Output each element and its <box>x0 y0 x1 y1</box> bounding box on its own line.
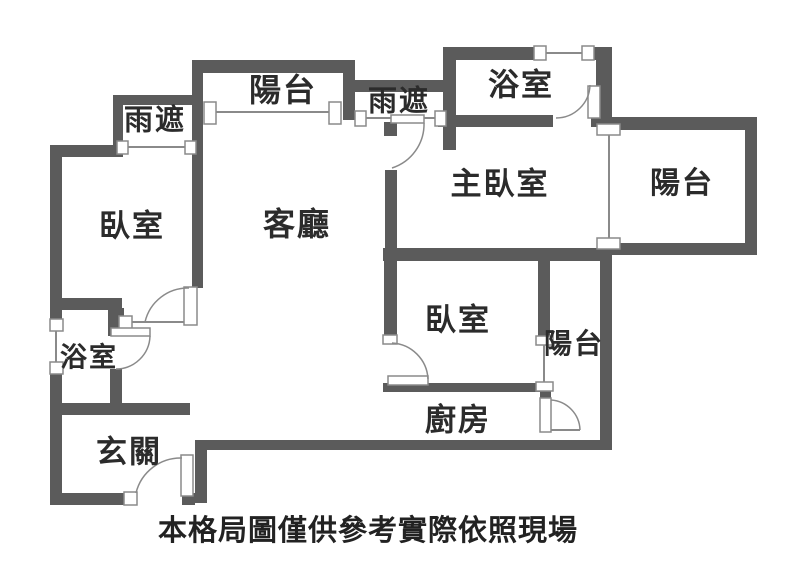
room-label-balcony-top: 陽台 <box>249 74 317 106</box>
wall-bottom-long <box>195 440 611 450</box>
window-jamb <box>329 102 341 124</box>
door-jamb <box>124 492 137 505</box>
wall-bedroom-balcony-divider <box>538 253 550 338</box>
room-label-entry: 玄關 <box>96 437 162 468</box>
window-jamb <box>534 46 546 60</box>
wall-entry-bottom <box>50 493 135 505</box>
door-arc-bath-left <box>116 336 150 369</box>
room-label-canopy-mid: 雨遮 <box>368 88 430 117</box>
wall-living-master-divider <box>385 170 397 250</box>
window-jamb <box>536 382 553 391</box>
room-label-living: 客廳 <box>263 208 331 240</box>
wall-outer-left-lower <box>50 373 62 505</box>
door-panel-bedroom-left <box>184 287 197 325</box>
caption-disclaimer: 本格局圖僅供參考實際依照現場 <box>158 507 578 549</box>
window-jamb <box>117 141 128 154</box>
window-jamb <box>597 124 620 135</box>
door-panel-entry <box>181 455 193 496</box>
wall-balcony-right-right <box>745 117 757 255</box>
room-label-bedroom-mid: 臥室 <box>425 305 491 336</box>
door-arc-bath-top <box>556 85 590 118</box>
door-panel-kitchen-balcony <box>540 398 551 432</box>
window-jamb <box>185 141 196 154</box>
wall-balcony-right-top <box>598 117 757 130</box>
window-jamb <box>435 111 446 126</box>
door-panel-bath-left <box>111 328 150 336</box>
floorplan: 雨遮 陽台 雨遮 浴室 主臥室 陽台 臥室 客廳 臥室 陽台 浴室 廚房 玄關 … <box>0 0 800 570</box>
wall-balcony-right-bottom <box>598 243 757 255</box>
room-label-bath-left: 浴室 <box>60 345 118 372</box>
room-label-bath-top: 浴室 <box>488 70 554 101</box>
door-arc-bedroom-left <box>145 288 189 322</box>
window-jamb <box>597 238 620 249</box>
wall-living-bedroom-divider <box>384 261 397 337</box>
wall-master-bottom <box>383 248 612 261</box>
room-label-balcony-right: 陽台 <box>650 169 714 199</box>
wall-bath-top-left <box>443 47 456 150</box>
room-label-canopy-top-left: 雨遮 <box>124 107 186 136</box>
window-jamb <box>204 102 216 124</box>
wall-bath-top-bottom <box>438 115 553 127</box>
wall-entry-right-step <box>195 440 207 503</box>
room-label-kitchen: 廚房 <box>425 405 491 436</box>
wall-bedroom-left-top <box>50 145 123 157</box>
wall-canopy-left-top <box>113 95 195 105</box>
wall-bath-left-lower <box>110 369 122 405</box>
wall-outer-left-upper <box>50 145 62 320</box>
door-arc-bedroom-mid <box>392 343 428 379</box>
window-jamb <box>582 46 594 60</box>
door-arc-kitchen-balcony <box>551 400 580 430</box>
window-jamb <box>355 111 366 126</box>
wall-bath-top-top <box>443 47 538 60</box>
room-label-bedroom-left: 臥室 <box>99 211 165 242</box>
room-label-balcony-lower: 陽台 <box>544 330 604 358</box>
room-label-master-bedroom: 主臥室 <box>451 169 550 200</box>
window-jamb <box>50 319 63 331</box>
door-panel-bedroom-mid <box>388 376 428 385</box>
wall-living-left <box>192 60 203 288</box>
wall-master-door-stub <box>384 122 397 136</box>
